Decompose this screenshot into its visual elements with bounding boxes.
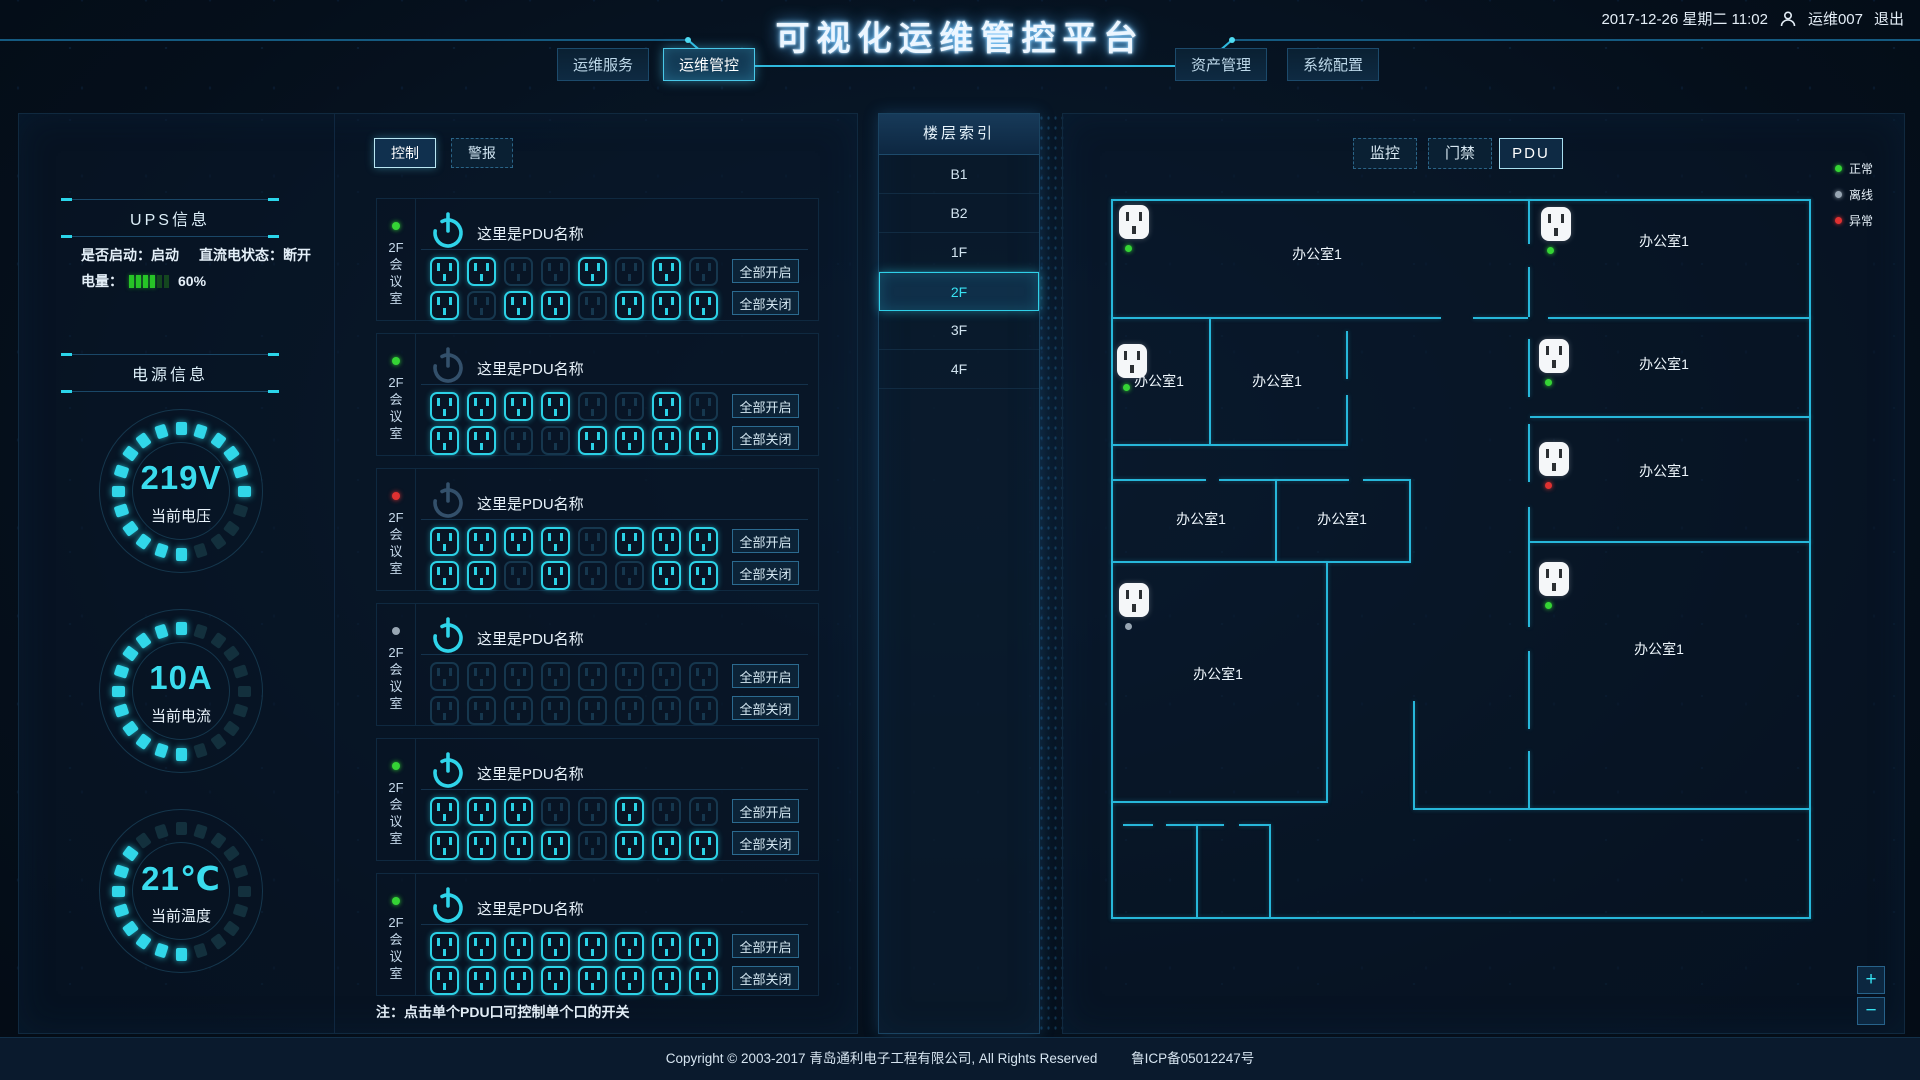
pdu-outlet-icon[interactable]: [504, 696, 533, 725]
all-off-button[interactable]: 全部关闭: [732, 561, 799, 585]
pdu-status-dot: [392, 357, 400, 365]
pdu-name: 这里是PDU名称: [477, 358, 584, 379]
all-off-button[interactable]: 全部关闭: [732, 291, 799, 315]
pdu-outlet-icon[interactable]: [430, 696, 459, 725]
pdu-name: 这里是PDU名称: [477, 223, 584, 244]
gauge-segment: [176, 622, 187, 635]
pdu-status-column: 2F会议室: [377, 334, 416, 455]
plan-outlet-status-dot: [1125, 623, 1132, 630]
pdu-outlet-icon[interactable]: [430, 797, 459, 826]
tab-monitor[interactable]: 监控: [1353, 138, 1417, 169]
pdu-outlet-icon[interactable]: [689, 797, 718, 826]
pdu-outlet-icon[interactable]: [652, 392, 681, 421]
pdu-outlet-icon[interactable]: [652, 831, 681, 860]
pdu-outlet-icon[interactable]: [578, 932, 607, 961]
pdu-outlet-icon[interactable]: [504, 392, 533, 421]
tab-control[interactable]: 控制: [374, 138, 436, 168]
floor-plan-panel: 监控 门禁 PDU 正常离线异常 办公室1办公室1办公室1办公室1办公室1办公室…: [1062, 113, 1905, 1034]
room-label: 办公室1: [1639, 231, 1689, 251]
pdu-outlet-icon[interactable]: [615, 797, 644, 826]
pdu-outlet-icon[interactable]: [541, 291, 570, 320]
decor-line: [61, 236, 279, 237]
plan-wall: [1530, 541, 1811, 543]
gauge-segment: [176, 948, 187, 961]
all-off-button[interactable]: 全部关闭: [732, 966, 799, 990]
pdu-outlet-icon[interactable]: [615, 527, 644, 556]
plan-wall: [1528, 199, 1530, 244]
legend-item: 离线: [1835, 186, 1873, 203]
plan-wall: [1326, 561, 1328, 801]
plan-outlet-status-dot: [1123, 384, 1130, 391]
outlet-grid: [430, 257, 718, 320]
datetime-label: 2017-12-26 星期二 11:02: [1601, 8, 1768, 29]
pdu-outlet-icon[interactable]: [430, 527, 459, 556]
plan-wall: [1196, 824, 1198, 917]
pdu-outlet-icon[interactable]: [541, 257, 570, 286]
plan-wall: [1528, 339, 1530, 397]
pdu-outlet-icon[interactable]: [430, 662, 459, 691]
header-user-area: 2017-12-26 星期二 11:02 运维007 退出: [1601, 8, 1904, 29]
pdu-outlet-icon[interactable]: [467, 662, 496, 691]
pdu-outlet-icon[interactable]: [615, 831, 644, 860]
room-label: 办公室1: [1634, 639, 1684, 659]
pdu-name: 这里是PDU名称: [477, 898, 584, 919]
pdu-outlet-icon[interactable]: [467, 257, 496, 286]
pdu-outlet-icon[interactable]: [652, 966, 681, 995]
plan-wall: [1409, 479, 1411, 561]
floor-item-b1[interactable]: B1: [879, 155, 1039, 194]
pdu-outlet-icon[interactable]: [578, 257, 607, 286]
plan-outlet-icon[interactable]: [1119, 205, 1149, 239]
outlet-grid: [430, 932, 718, 995]
all-off-button[interactable]: 全部关闭: [732, 426, 799, 450]
gauge-segment: [176, 822, 187, 835]
gauge-segment: [176, 422, 187, 435]
pdu-outlet-icon[interactable]: [430, 392, 459, 421]
outlet-grid: [430, 527, 718, 590]
temperature-label: 当前温度: [99, 905, 263, 926]
pdu-status-dot: [392, 762, 400, 770]
legend-dot: [1835, 191, 1842, 198]
pdu-outlet-icon[interactable]: [689, 527, 718, 556]
tab-pdu[interactable]: PDU: [1499, 138, 1563, 169]
pdu-outlet-icon[interactable]: [615, 932, 644, 961]
ups-section-title: UPS信息: [61, 200, 279, 236]
icp-number: 鲁ICP备05012247号: [1131, 1051, 1254, 1066]
floor-index-panel: 楼层索引 B1B21F2F3F4F: [878, 113, 1040, 1034]
pdu-outlet-icon[interactable]: [467, 966, 496, 995]
pdu-location-label: 2F会议室: [377, 644, 415, 712]
floor-item-4f[interactable]: 4F: [879, 350, 1039, 389]
outlet-grid: [430, 392, 718, 455]
pdu-outlet-icon[interactable]: [652, 696, 681, 725]
plan-wall: [1528, 507, 1530, 627]
pdu-outlet-icon[interactable]: [467, 831, 496, 860]
pdu-card: 2F会议室这里是PDU名称全部开启全部关闭: [376, 738, 819, 861]
pdu-status-dot: [392, 627, 400, 635]
outlet-grid: [430, 662, 718, 725]
pdu-outlet-icon[interactable]: [578, 561, 607, 590]
plan-wall: [1209, 319, 1211, 444]
status-legend: 正常离线异常: [1835, 160, 1873, 238]
app-root: 可视化运维管控平台 2017-12-26 星期二 11:02 运维007 退出 …: [0, 0, 1920, 1080]
pdu-outlet-icon[interactable]: [578, 696, 607, 725]
pdu-name: 这里是PDU名称: [477, 628, 584, 649]
pdu-outlet-icon[interactable]: [467, 527, 496, 556]
pdu-outlet-icon[interactable]: [689, 831, 718, 860]
voltage-label: 当前电压: [99, 505, 263, 526]
pdu-outlet-icon[interactable]: [578, 966, 607, 995]
plan-outlet-icon[interactable]: [1539, 339, 1569, 373]
outlet-grid: [430, 797, 718, 860]
temperature-gauge: 21℃ 当前温度: [99, 809, 263, 973]
decor-line: [61, 199, 279, 200]
power-section-header: 电源信息: [61, 354, 279, 392]
pdu-outlet-icon[interactable]: [578, 797, 607, 826]
gauge-segment: [176, 748, 187, 761]
pdu-outlet-icon[interactable]: [689, 257, 718, 286]
legend-item: 异常: [1835, 212, 1873, 229]
pdu-outlet-icon[interactable]: [652, 932, 681, 961]
current-label: 当前电流: [99, 705, 263, 726]
legend-label: 异常: [1849, 212, 1873, 229]
ups-battery-row: 电量： 60%: [81, 271, 206, 291]
zoom-controls: + −: [1857, 966, 1885, 1028]
pdu-outlet-icon[interactable]: [541, 966, 570, 995]
pdu-outlet-icon[interactable]: [652, 561, 681, 590]
pdu-outlet-icon[interactable]: [467, 932, 496, 961]
tab-yunwei-fuwu[interactable]: 运维服务: [557, 48, 649, 81]
legend-item: 正常: [1835, 160, 1873, 177]
plan-wall: [1111, 801, 1328, 803]
pdu-outlet-icon[interactable]: [578, 527, 607, 556]
all-on-button[interactable]: 全部开启: [732, 529, 799, 553]
pdu-outlet-icon[interactable]: [615, 662, 644, 691]
pdu-outlet-icon[interactable]: [615, 696, 644, 725]
plan-wall: [1363, 479, 1409, 481]
pdu-outlet-icon[interactable]: [578, 662, 607, 691]
panel-divider: [334, 114, 335, 1033]
pdu-outlet-icon[interactable]: [689, 392, 718, 421]
plan-wall: [1111, 199, 1113, 919]
tab-access-control[interactable]: 门禁: [1428, 138, 1492, 169]
plan-wall: [1548, 317, 1811, 319]
separator-line: [421, 519, 808, 520]
logout-button[interactable]: 退出: [1874, 8, 1904, 29]
battery-percent: 60%: [178, 273, 206, 289]
battery-cell: [164, 275, 169, 288]
room-label: 办公室1: [1317, 509, 1367, 529]
room-label: 办公室1: [1252, 371, 1302, 391]
plan-wall: [1413, 701, 1415, 808]
floor-item-b2[interactable]: B2: [879, 194, 1039, 233]
plan-wall: [1346, 395, 1348, 444]
pdu-outlet-icon[interactable]: [430, 831, 459, 860]
pdu-outlet-icon[interactable]: [504, 527, 533, 556]
pdu-card: 2F会议室这里是PDU名称全部开启全部关闭: [376, 333, 819, 456]
pdu-outlet-icon[interactable]: [652, 291, 681, 320]
pdu-outlet-icon[interactable]: [652, 257, 681, 286]
pdu-outlet-icon[interactable]: [652, 662, 681, 691]
separator-line: [421, 789, 808, 790]
pdu-outlet-icon[interactable]: [615, 426, 644, 455]
plan-outlet-icon[interactable]: [1539, 562, 1569, 596]
power-section-title: 电源信息: [61, 355, 279, 391]
plan-wall: [1809, 199, 1811, 919]
pdu-name: 这里是PDU名称: [477, 493, 584, 514]
battery-icon: [129, 275, 169, 288]
pdu-outlet-icon[interactable]: [615, 561, 644, 590]
battery-cell: [136, 275, 141, 288]
power-icon[interactable]: [428, 345, 468, 385]
all-on-button[interactable]: 全部开启: [732, 259, 799, 283]
pdu-outlet-icon[interactable]: [430, 561, 459, 590]
floor-index-title: 楼层索引: [879, 114, 1039, 155]
pdu-outlet-icon[interactable]: [615, 966, 644, 995]
pdu-outlet-icon[interactable]: [541, 561, 570, 590]
plan-wall: [1111, 199, 1811, 201]
pdu-list: 2F会议室这里是PDU名称全部开启全部关闭2F会议室这里是PDU名称全部开启全部…: [376, 198, 819, 1008]
pdu-status-column: 2F会议室: [377, 199, 416, 320]
current-value: 10A: [99, 659, 263, 697]
pdu-outlet-icon[interactable]: [430, 966, 459, 995]
pdu-outlet-icon[interactable]: [467, 561, 496, 590]
pdu-outlet-icon[interactable]: [430, 257, 459, 286]
pdu-outlet-icon[interactable]: [578, 392, 607, 421]
plan-wall: [1528, 751, 1530, 808]
decor-line: [61, 354, 279, 355]
pdu-name: 这里是PDU名称: [477, 763, 584, 784]
pdu-status-column: 2F会议室: [377, 739, 416, 860]
plan-wall: [1413, 808, 1811, 810]
all-off-button[interactable]: 全部关闭: [732, 696, 799, 720]
pdu-card: 2F会议室这里是PDU名称全部开启全部关闭: [376, 468, 819, 591]
plan-wall: [1530, 416, 1811, 418]
pdu-outlet-icon[interactable]: [504, 932, 533, 961]
battery-cell: [129, 275, 134, 288]
plan-outlet-status-dot: [1125, 245, 1132, 252]
pdu-outlet-icon[interactable]: [504, 426, 533, 455]
plan-outlet-icon[interactable]: [1541, 207, 1571, 241]
pdu-outlet-icon[interactable]: [615, 392, 644, 421]
plan-wall: [1346, 331, 1348, 379]
pdu-outlet-icon[interactable]: [467, 426, 496, 455]
pdu-status-dot: [392, 222, 400, 230]
pdu-outlet-icon[interactable]: [689, 291, 718, 320]
floor-list: B1B21F2F3F4F: [879, 155, 1039, 389]
ups-start-status: 是否启动：启动: [81, 245, 179, 265]
copyright-text: Copyright © 2003-2017 青岛通利电子工程有限公司, All …: [666, 1051, 1098, 1066]
zoom-in-button[interactable]: +: [1857, 966, 1885, 994]
pdu-location-label: 2F会议室: [377, 239, 415, 307]
current-gauge: 10A 当前电流: [99, 609, 263, 773]
battery-cell: [157, 275, 162, 288]
pdu-outlet-icon[interactable]: [467, 797, 496, 826]
power-icon[interactable]: [428, 210, 468, 250]
ups-dc-status: 直流电状态：断开: [199, 245, 311, 265]
particle-decor: [1038, 113, 1064, 1034]
pdu-card: 2F会议室这里是PDU名称全部开启全部关闭: [376, 198, 819, 321]
pdu-outlet-icon[interactable]: [689, 966, 718, 995]
legend-label: 离线: [1849, 186, 1873, 203]
pdu-location-label: 2F会议室: [377, 509, 415, 577]
pdu-outlet-icon[interactable]: [541, 932, 570, 961]
plan-wall: [1528, 651, 1530, 729]
pdu-outlet-icon[interactable]: [652, 527, 681, 556]
pdu-outlet-icon[interactable]: [430, 291, 459, 320]
power-icon[interactable]: [428, 750, 468, 790]
battery-cell: [143, 275, 148, 288]
plan-wall: [1528, 424, 1530, 482]
plan-wall: [1123, 824, 1153, 826]
voltage-gauge: 219V 当前电压: [99, 409, 263, 573]
pdu-outlet-icon[interactable]: [541, 426, 570, 455]
pdu-outlet-icon[interactable]: [541, 696, 570, 725]
pdu-outlet-icon[interactable]: [467, 696, 496, 725]
plan-wall: [1275, 479, 1277, 561]
pdu-outlet-icon[interactable]: [541, 662, 570, 691]
room-label: 办公室1: [1639, 354, 1689, 374]
pdu-outlet-icon[interactable]: [504, 966, 533, 995]
room-label: 办公室1: [1193, 664, 1243, 684]
pdu-outlet-icon[interactable]: [652, 797, 681, 826]
plan-wall: [1111, 444, 1348, 446]
decor-line: [61, 391, 279, 392]
pdu-outlet-icon[interactable]: [467, 291, 496, 320]
tab-xitong-peizhi[interactable]: 系统配置: [1287, 48, 1379, 81]
power-icon[interactable]: [428, 480, 468, 520]
floor-item-1f[interactable]: 1F: [879, 233, 1039, 272]
plan-wall: [1219, 479, 1349, 481]
zoom-out-button[interactable]: −: [1857, 997, 1885, 1025]
pdu-status-column: 2F会议室: [377, 874, 416, 995]
username-label[interactable]: 运维007: [1808, 8, 1863, 29]
all-on-button[interactable]: 全部开启: [732, 799, 799, 823]
room-label: 办公室1: [1176, 509, 1226, 529]
pdu-outlet-icon[interactable]: [504, 831, 533, 860]
pdu-status-dot: [392, 897, 400, 905]
all-on-button[interactable]: 全部开启: [732, 664, 799, 688]
plan-outlet-status-dot: [1545, 379, 1552, 386]
room-label: 办公室1: [1639, 461, 1689, 481]
plan-wall: [1111, 561, 1411, 563]
pdu-outlet-icon[interactable]: [689, 561, 718, 590]
separator-line: [421, 924, 808, 925]
pdu-note: 注：点击单个PDU口可控制单个口的开关: [376, 1002, 630, 1022]
pdu-outlet-icon[interactable]: [541, 527, 570, 556]
pdu-outlet-icon[interactable]: [578, 426, 607, 455]
separator-line: [421, 384, 808, 385]
pdu-outlet-icon[interactable]: [578, 291, 607, 320]
plan-outlet-icon[interactable]: [1119, 583, 1149, 617]
battery-label: 电量：: [81, 271, 123, 291]
plan-wall: [1239, 824, 1269, 826]
pdu-outlet-icon[interactable]: [504, 797, 533, 826]
pdu-card: 2F会议室这里是PDU名称全部开启全部关闭: [376, 873, 819, 996]
room-label: 办公室1: [1292, 244, 1342, 264]
pdu-outlet-icon[interactable]: [430, 932, 459, 961]
ups-section-header: UPS信息: [61, 199, 279, 237]
voltage-value: 219V: [99, 459, 263, 497]
plan-wall: [1528, 267, 1530, 317]
all-on-button[interactable]: 全部开启: [732, 394, 799, 418]
pdu-location-label: 2F会议室: [377, 914, 415, 982]
floor-plan: 办公室1办公室1办公室1办公室1办公室1办公室1办公室1办公室1办公室1办公室1: [1111, 199, 1811, 919]
pdu-outlet-icon[interactable]: [504, 291, 533, 320]
separator-line: [421, 249, 808, 250]
tab-zichan-guanli[interactable]: 资产管理: [1175, 48, 1267, 81]
plan-outlet-icon[interactable]: [1117, 344, 1147, 378]
plan-outlet-status-dot: [1545, 602, 1552, 609]
plan-wall: [1166, 824, 1224, 826]
pdu-outlet-icon[interactable]: [430, 426, 459, 455]
tab-yunwei-guankong[interactable]: 运维管控: [663, 48, 755, 81]
plan-wall: [1111, 479, 1206, 481]
pdu-outlet-icon[interactable]: [689, 932, 718, 961]
plan-outlet-status-dot: [1545, 482, 1552, 489]
pdu-outlet-icon[interactable]: [615, 257, 644, 286]
pdu-location-label: 2F会议室: [377, 374, 415, 442]
separator-line: [421, 654, 808, 655]
pdu-outlet-icon[interactable]: [541, 831, 570, 860]
battery-cell: [150, 275, 155, 288]
pdu-status-column: 2F会议室: [377, 604, 416, 725]
plan-wall: [1111, 917, 1811, 919]
pdu-outlet-icon[interactable]: [467, 392, 496, 421]
pdu-outlet-icon[interactable]: [504, 561, 533, 590]
all-on-button[interactable]: 全部开启: [732, 934, 799, 958]
pdu-outlet-icon[interactable]: [504, 257, 533, 286]
floor-item-2f[interactable]: 2F: [879, 272, 1039, 311]
all-off-button[interactable]: 全部关闭: [732, 831, 799, 855]
legend-dot: [1835, 217, 1842, 224]
pdu-outlet-icon[interactable]: [578, 831, 607, 860]
floor-item-3f[interactable]: 3F: [879, 311, 1039, 350]
pdu-card: 2F会议室这里是PDU名称全部开启全部关闭: [376, 603, 819, 726]
pdu-outlet-icon[interactable]: [504, 662, 533, 691]
pdu-outlet-icon[interactable]: [615, 291, 644, 320]
plan-wall: [1111, 317, 1441, 319]
tab-alarm[interactable]: 警报: [451, 138, 513, 168]
gauge-segment: [176, 548, 187, 561]
plan-outlet-icon[interactable]: [1539, 442, 1569, 476]
plan-wall: [1269, 824, 1271, 917]
legend-label: 正常: [1849, 160, 1873, 177]
pdu-outlet-icon[interactable]: [689, 662, 718, 691]
pdu-outlet-icon[interactable]: [541, 392, 570, 421]
legend-dot: [1835, 165, 1842, 172]
pdu-outlet-icon[interactable]: [541, 797, 570, 826]
pdu-location-label: 2F会议室: [377, 779, 415, 847]
plan-wall: [1473, 317, 1528, 319]
temperature-value: 21℃: [99, 859, 263, 898]
pdu-outlet-icon[interactable]: [689, 426, 718, 455]
user-icon: [1779, 10, 1797, 28]
power-icon[interactable]: [428, 615, 468, 655]
plan-outlet-status-dot: [1547, 247, 1554, 254]
power-icon[interactable]: [428, 885, 468, 925]
pdu-outlet-icon[interactable]: [652, 426, 681, 455]
footer: Copyright © 2003-2017 青岛通利电子工程有限公司, All …: [0, 1037, 1920, 1080]
control-panel: 控制 警报 UPS信息 是否启动：启动 直流电状态：断开 电量： 60% 电源信…: [18, 113, 858, 1034]
pdu-status-column: 2F会议室: [377, 469, 416, 590]
pdu-status-dot: [392, 492, 400, 500]
pdu-outlet-icon[interactable]: [689, 696, 718, 725]
